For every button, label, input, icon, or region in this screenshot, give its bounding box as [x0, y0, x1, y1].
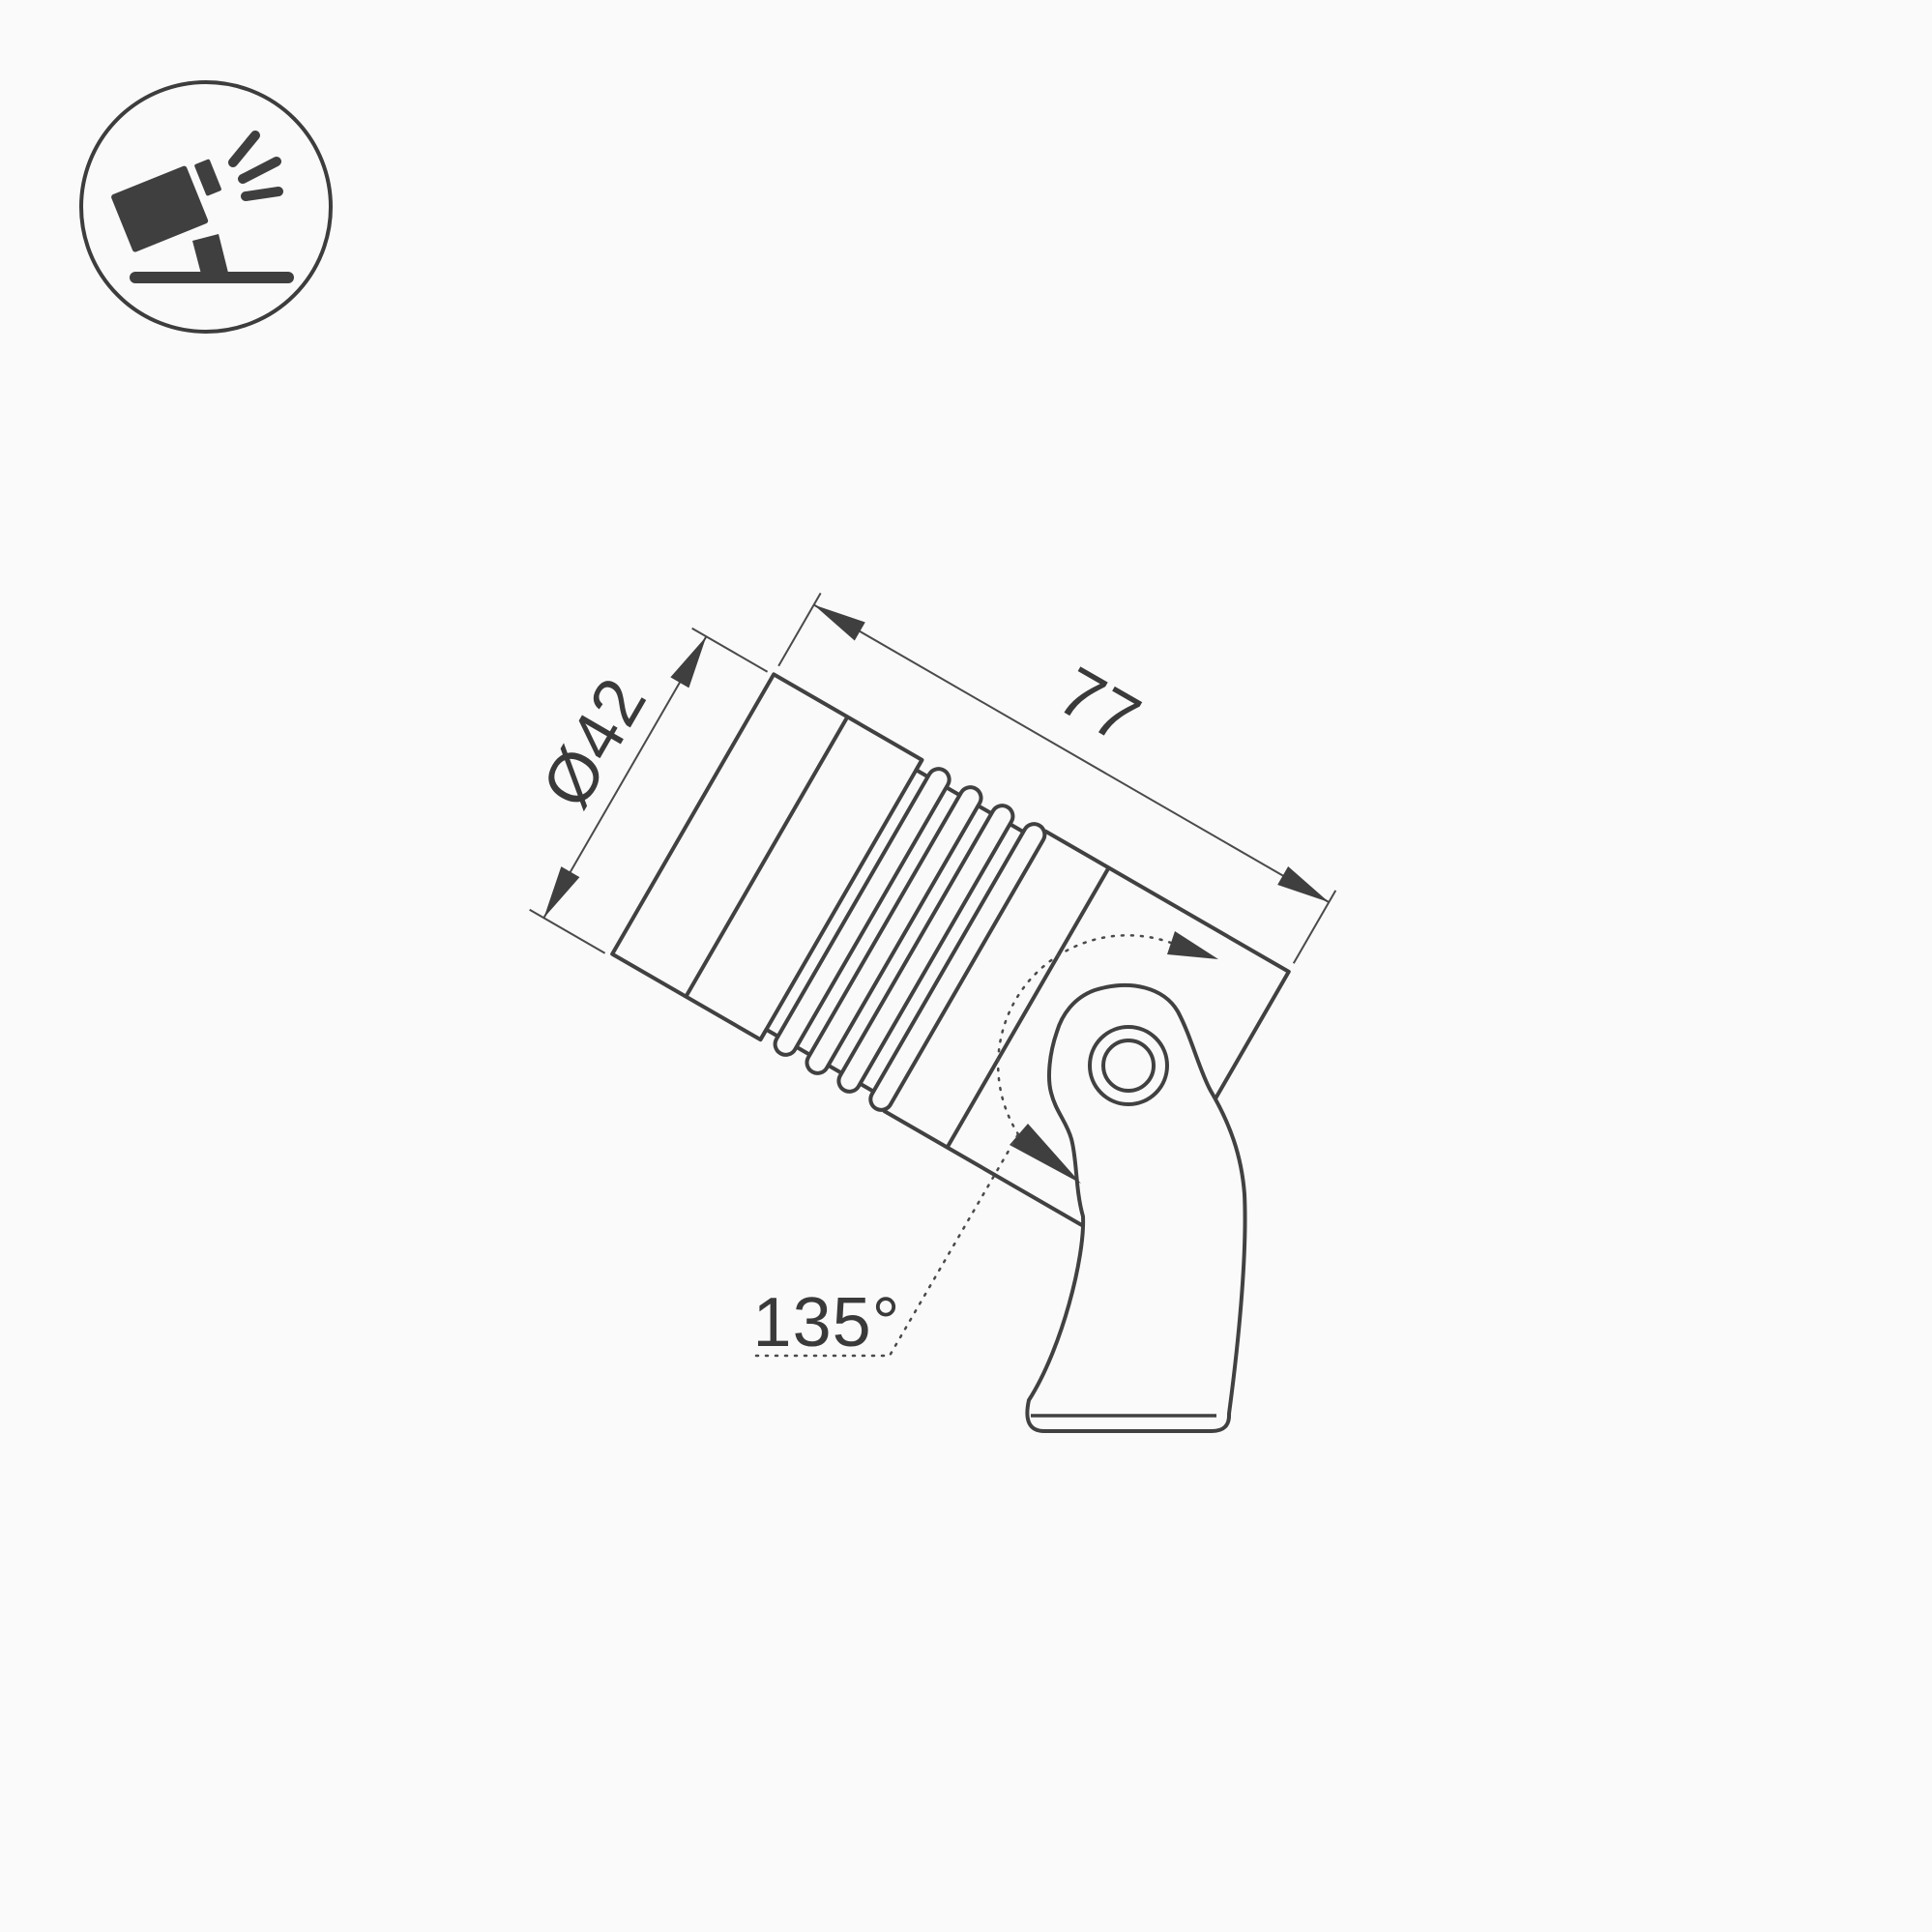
technical-drawing: Ø42 77 135°: [0, 0, 1932, 1932]
extension-line-bottom: [530, 910, 605, 953]
light-ray-middle: [243, 161, 277, 179]
dimension-diameter-label: Ø42: [527, 665, 661, 820]
arrowhead-up-icon: [670, 631, 716, 688]
light-ray-bottom: [246, 191, 278, 196]
dimension-length-label: 77: [1045, 653, 1153, 759]
extension-line-top: [692, 629, 768, 672]
light-ray-top: [233, 135, 255, 162]
arrowhead-left-icon: [808, 596, 865, 641]
pivot-screw-hole: [1103, 1040, 1154, 1091]
drawing-canvas: Ø42 77 135°: [0, 0, 1932, 1932]
projector-housing: [110, 165, 209, 253]
light-rays-icon: [233, 135, 278, 196]
spotlight-icon: [81, 82, 331, 332]
arrowhead-right-icon: [1277, 866, 1334, 912]
lamp-assembly-rotated: Ø42 77: [473, 444, 1376, 1254]
projector-lens-cap: [194, 159, 222, 196]
arrowhead-down-icon: [535, 866, 580, 923]
dimension-angle-label: 135°: [753, 1284, 901, 1361]
